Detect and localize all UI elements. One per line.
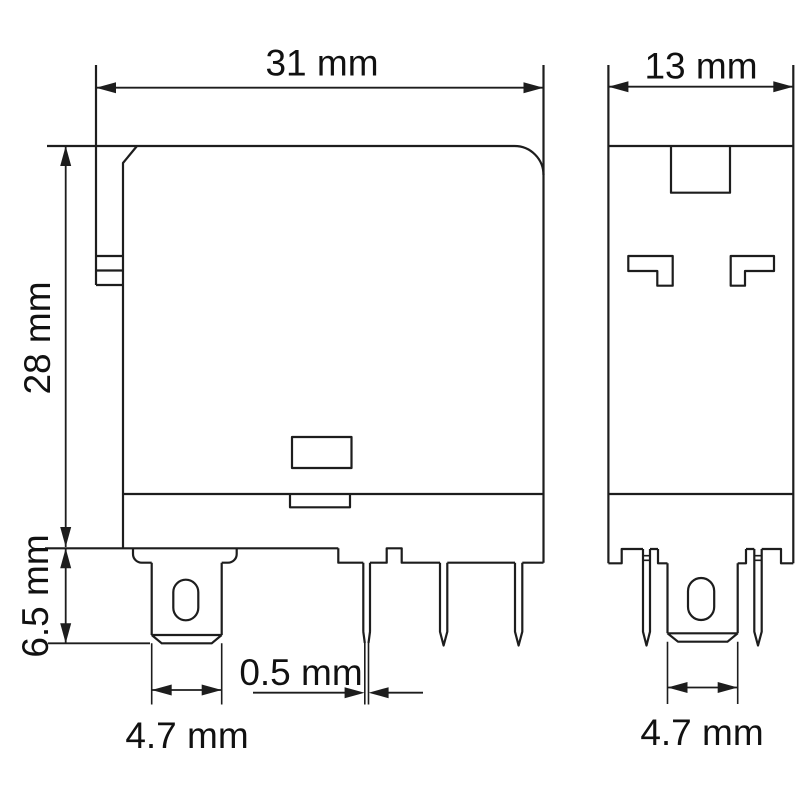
front-bottom-face	[45, 548, 544, 562]
dim-label-body-height: 28 mm	[17, 281, 58, 394]
arrowhead-up-icon	[60, 548, 71, 568]
dimension-side-tab-width: 4.7 mm	[640, 642, 763, 753]
front-tab-blade	[152, 563, 222, 644]
dim-label-side-tab-width: 4.7 mm	[640, 712, 763, 753]
ext-lines-pin	[365, 643, 369, 705]
side-view	[608, 65, 793, 646]
side-pin-right	[754, 549, 761, 646]
front-pin-right	[515, 563, 522, 646]
side-tab-blade	[668, 563, 738, 641]
side-bottom-face	[608, 549, 793, 563]
side-tab-terminal	[658, 549, 746, 642]
side-top-notch	[671, 146, 730, 193]
side-latch-cutout-right	[731, 256, 774, 286]
side-body-outline	[608, 65, 793, 563]
dim-label-pin-thickness: 0.5 mm	[239, 652, 362, 693]
relay-dimension-drawing: 31 mm 13 mm 28 mm 6.5 mm 0.5 mm 4.7 mm	[0, 0, 800, 800]
dimension-pin-length: 6.5 mm	[15, 534, 150, 657]
arrowhead-up-icon	[60, 146, 71, 166]
front-flange	[96, 65, 123, 285]
dimension-front-tab-width: 4.7 mm	[125, 643, 248, 756]
dimension-body-height: 28 mm	[17, 146, 71, 547]
arrowhead-left-icon	[152, 685, 172, 696]
arrowhead-left-icon	[608, 81, 628, 92]
front-base-separator	[123, 494, 544, 507]
dim-label-front-tab-width: 4.7 mm	[125, 715, 248, 756]
dim-label-front-width: 31 mm	[265, 43, 378, 84]
front-tab-terminal	[133, 548, 237, 643]
arrowhead-right-icon	[202, 685, 222, 696]
ext-lines-front-tab	[152, 643, 222, 704]
front-tab-slot	[173, 580, 198, 621]
arrowhead-down-icon	[60, 623, 71, 643]
arrowhead-left-icon	[96, 82, 116, 93]
arrowhead-down-icon	[60, 527, 71, 547]
arrowhead-right-icon	[773, 81, 793, 92]
front-pin-left	[440, 563, 447, 646]
front-body-left-edge	[123, 146, 137, 548]
front-middle-pin	[363, 563, 370, 643]
side-tab-slot	[688, 578, 714, 620]
dim-label-pin-length: 6.5 mm	[15, 534, 56, 657]
side-pin-right-ticks	[754, 556, 761, 561]
arrowhead-left-icon	[668, 682, 688, 693]
dimension-front-width: 31 mm	[96, 43, 544, 94]
arrowhead-left-icon	[369, 687, 389, 698]
front-body-top-edge	[47, 146, 544, 175]
arrowhead-right-icon	[718, 682, 738, 693]
side-pin-left	[643, 549, 650, 646]
technical-drawing-canvas: 31 mm 13 mm 28 mm 6.5 mm 0.5 mm 4.7 mm	[0, 0, 800, 800]
arrowhead-right-icon	[524, 82, 544, 93]
dimension-pin-thickness: 0.5 mm	[239, 643, 423, 705]
ext-lines-side-tab	[668, 642, 738, 704]
side-tab-shoulder	[658, 549, 746, 563]
front-indicator-window	[292, 437, 352, 468]
front-tab-shoulder	[133, 548, 237, 562]
side-latch-cutout-left	[628, 256, 672, 286]
dimension-side-width: 13 mm	[608, 46, 793, 93]
dim-label-side-width: 13 mm	[644, 46, 757, 87]
front-view	[45, 65, 544, 646]
